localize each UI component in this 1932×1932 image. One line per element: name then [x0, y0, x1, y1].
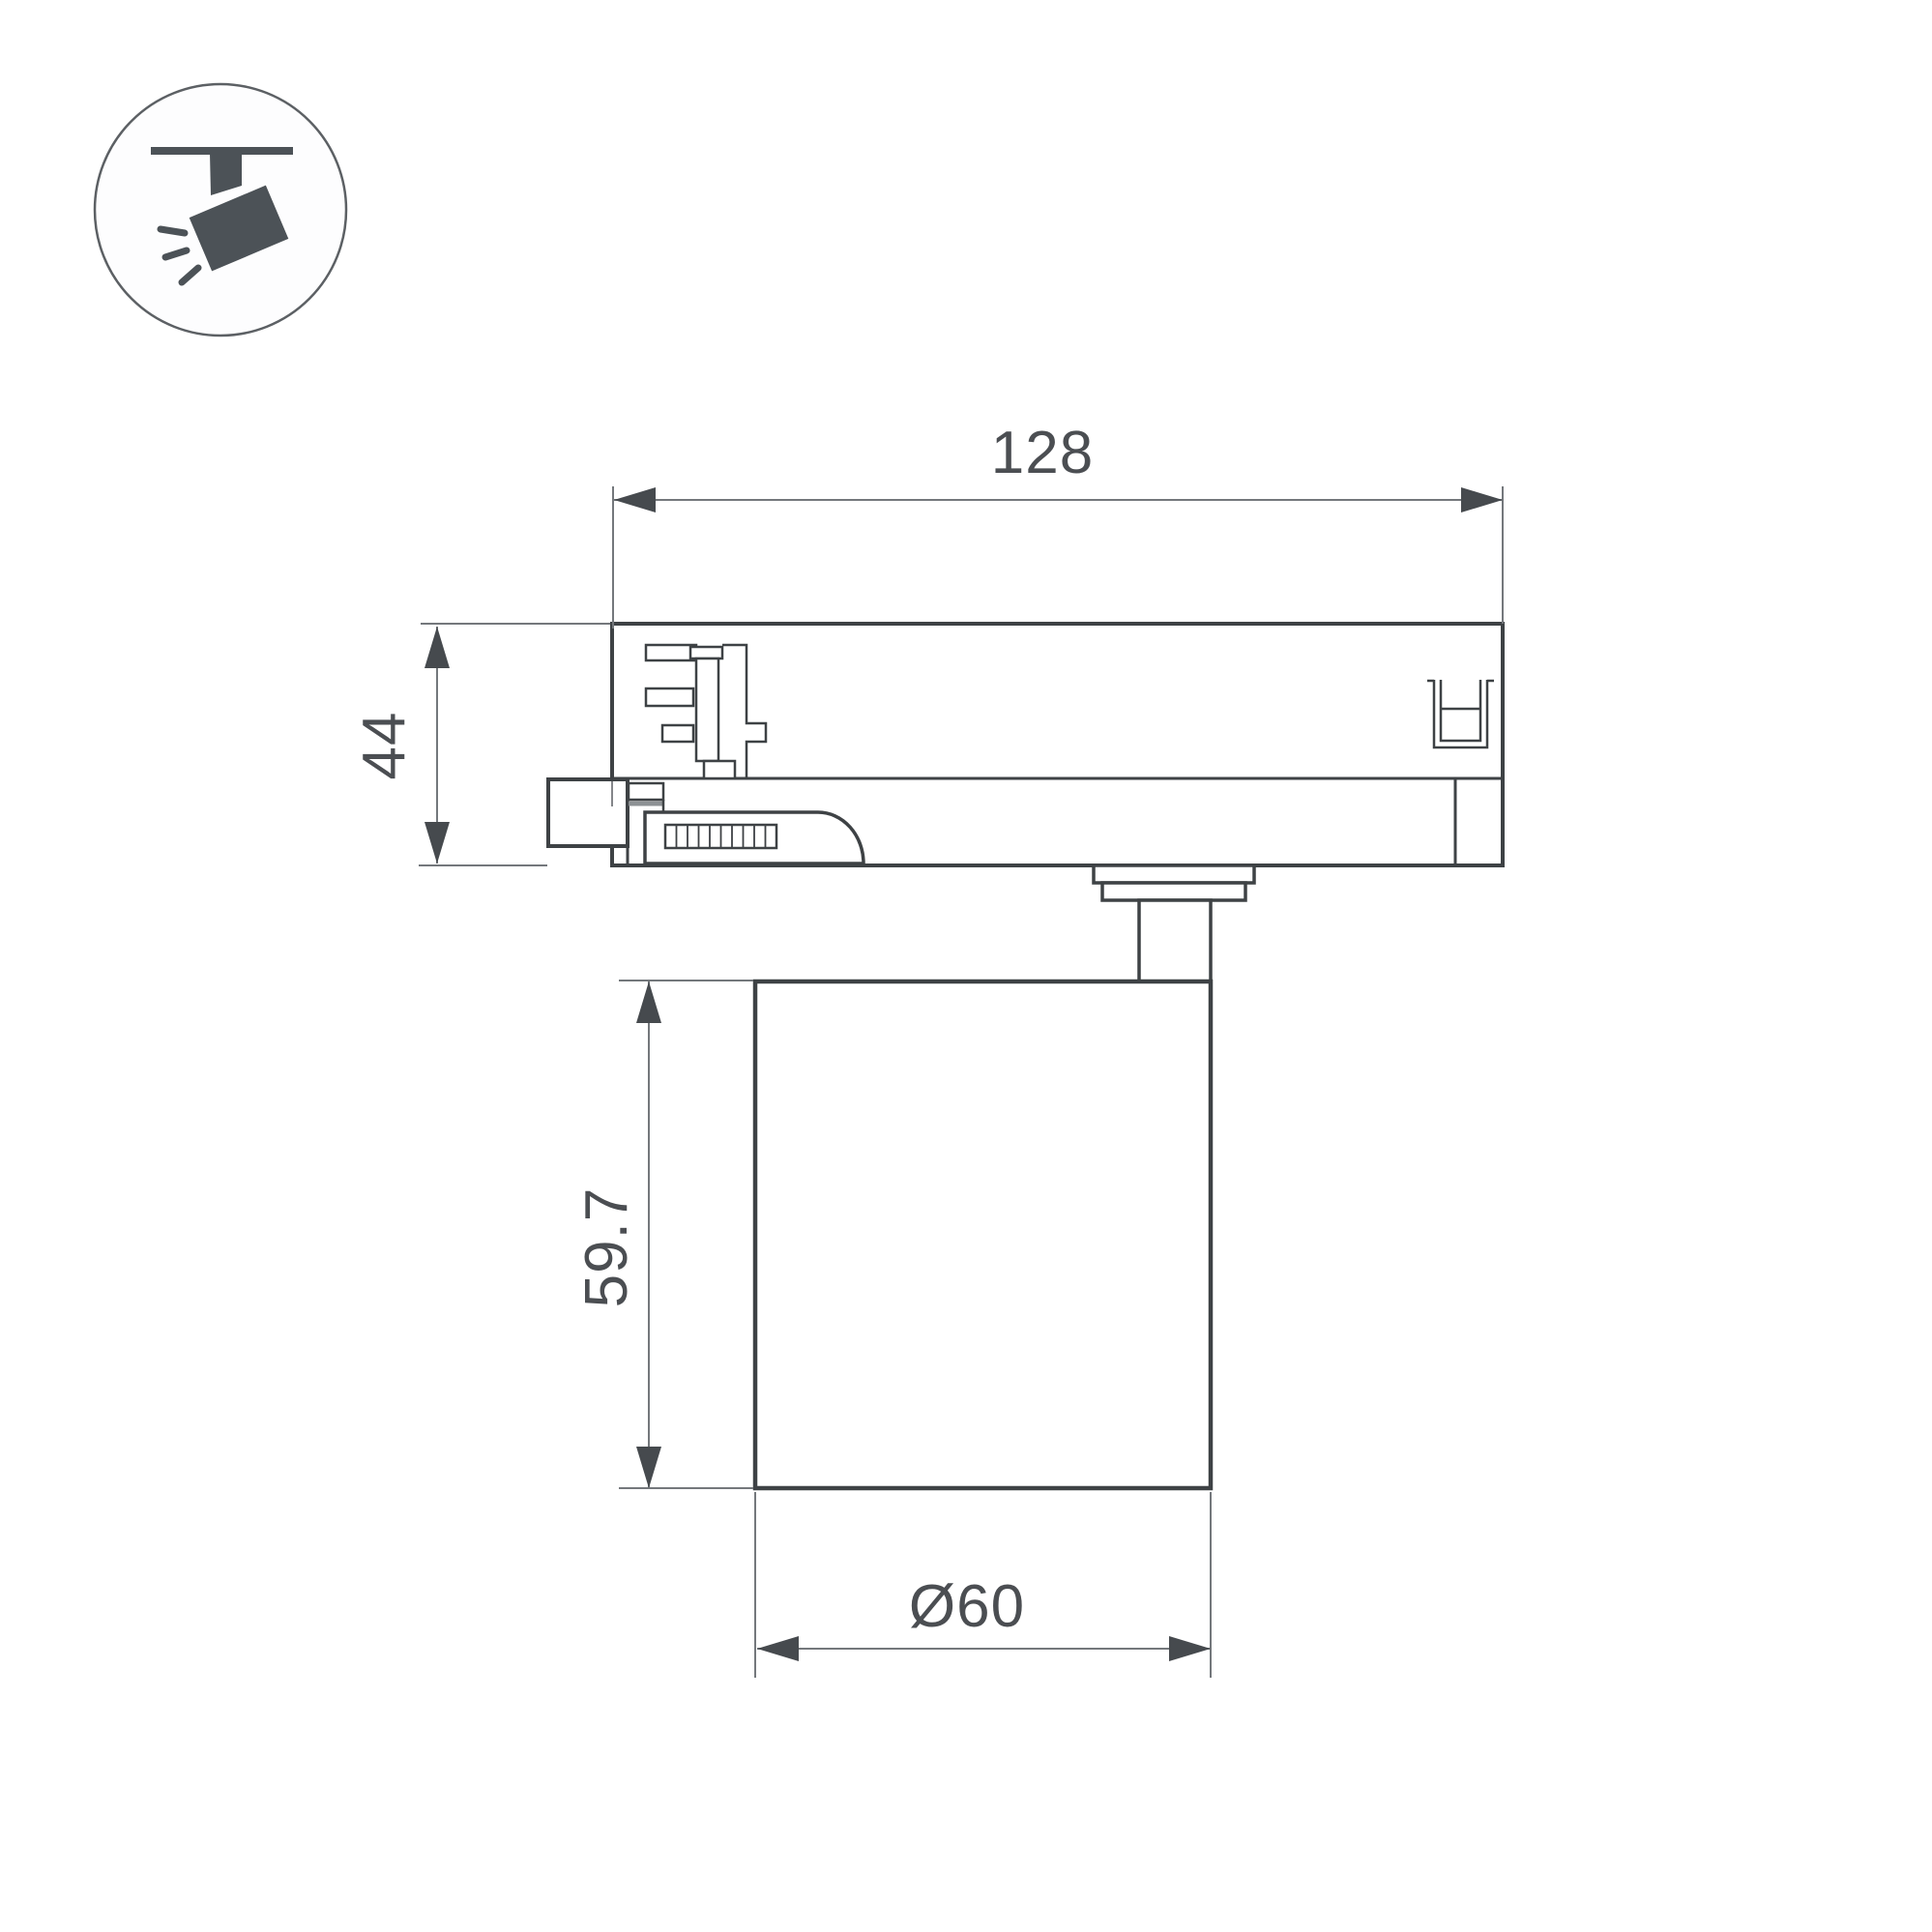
arrow-down	[636, 1447, 661, 1488]
dimension-label-lamp-diameter: Ø60	[909, 1573, 1025, 1640]
arrow-left	[614, 487, 656, 512]
track-adapter	[548, 624, 1503, 981]
technical-drawing: 128 44 59.7 Ø60	[0, 0, 1932, 1932]
track-spotlight-icon	[95, 84, 346, 336]
swivel-joint	[1094, 865, 1254, 981]
dimension-lamp-diameter: Ø60	[755, 1492, 1211, 1678]
arrow-right	[1169, 1636, 1211, 1661]
arrow-down	[424, 822, 450, 864]
dimension-lamp-height: 59.7	[573, 981, 753, 1488]
arrow-right	[1461, 487, 1503, 512]
arrow-up	[636, 981, 661, 1023]
lamp-stem	[1139, 900, 1211, 981]
arrow-left	[757, 1636, 799, 1661]
arrow-up	[424, 627, 450, 668]
dimension-track-width: 128	[613, 420, 1503, 629]
dimension-label-track-width: 128	[991, 420, 1094, 486]
dimension-label-adapter-height: 44	[351, 712, 418, 780]
lamp-body	[755, 981, 1211, 1488]
adjustment-grip	[645, 812, 864, 864]
dimension-label-lamp-height: 59.7	[573, 1187, 640, 1308]
